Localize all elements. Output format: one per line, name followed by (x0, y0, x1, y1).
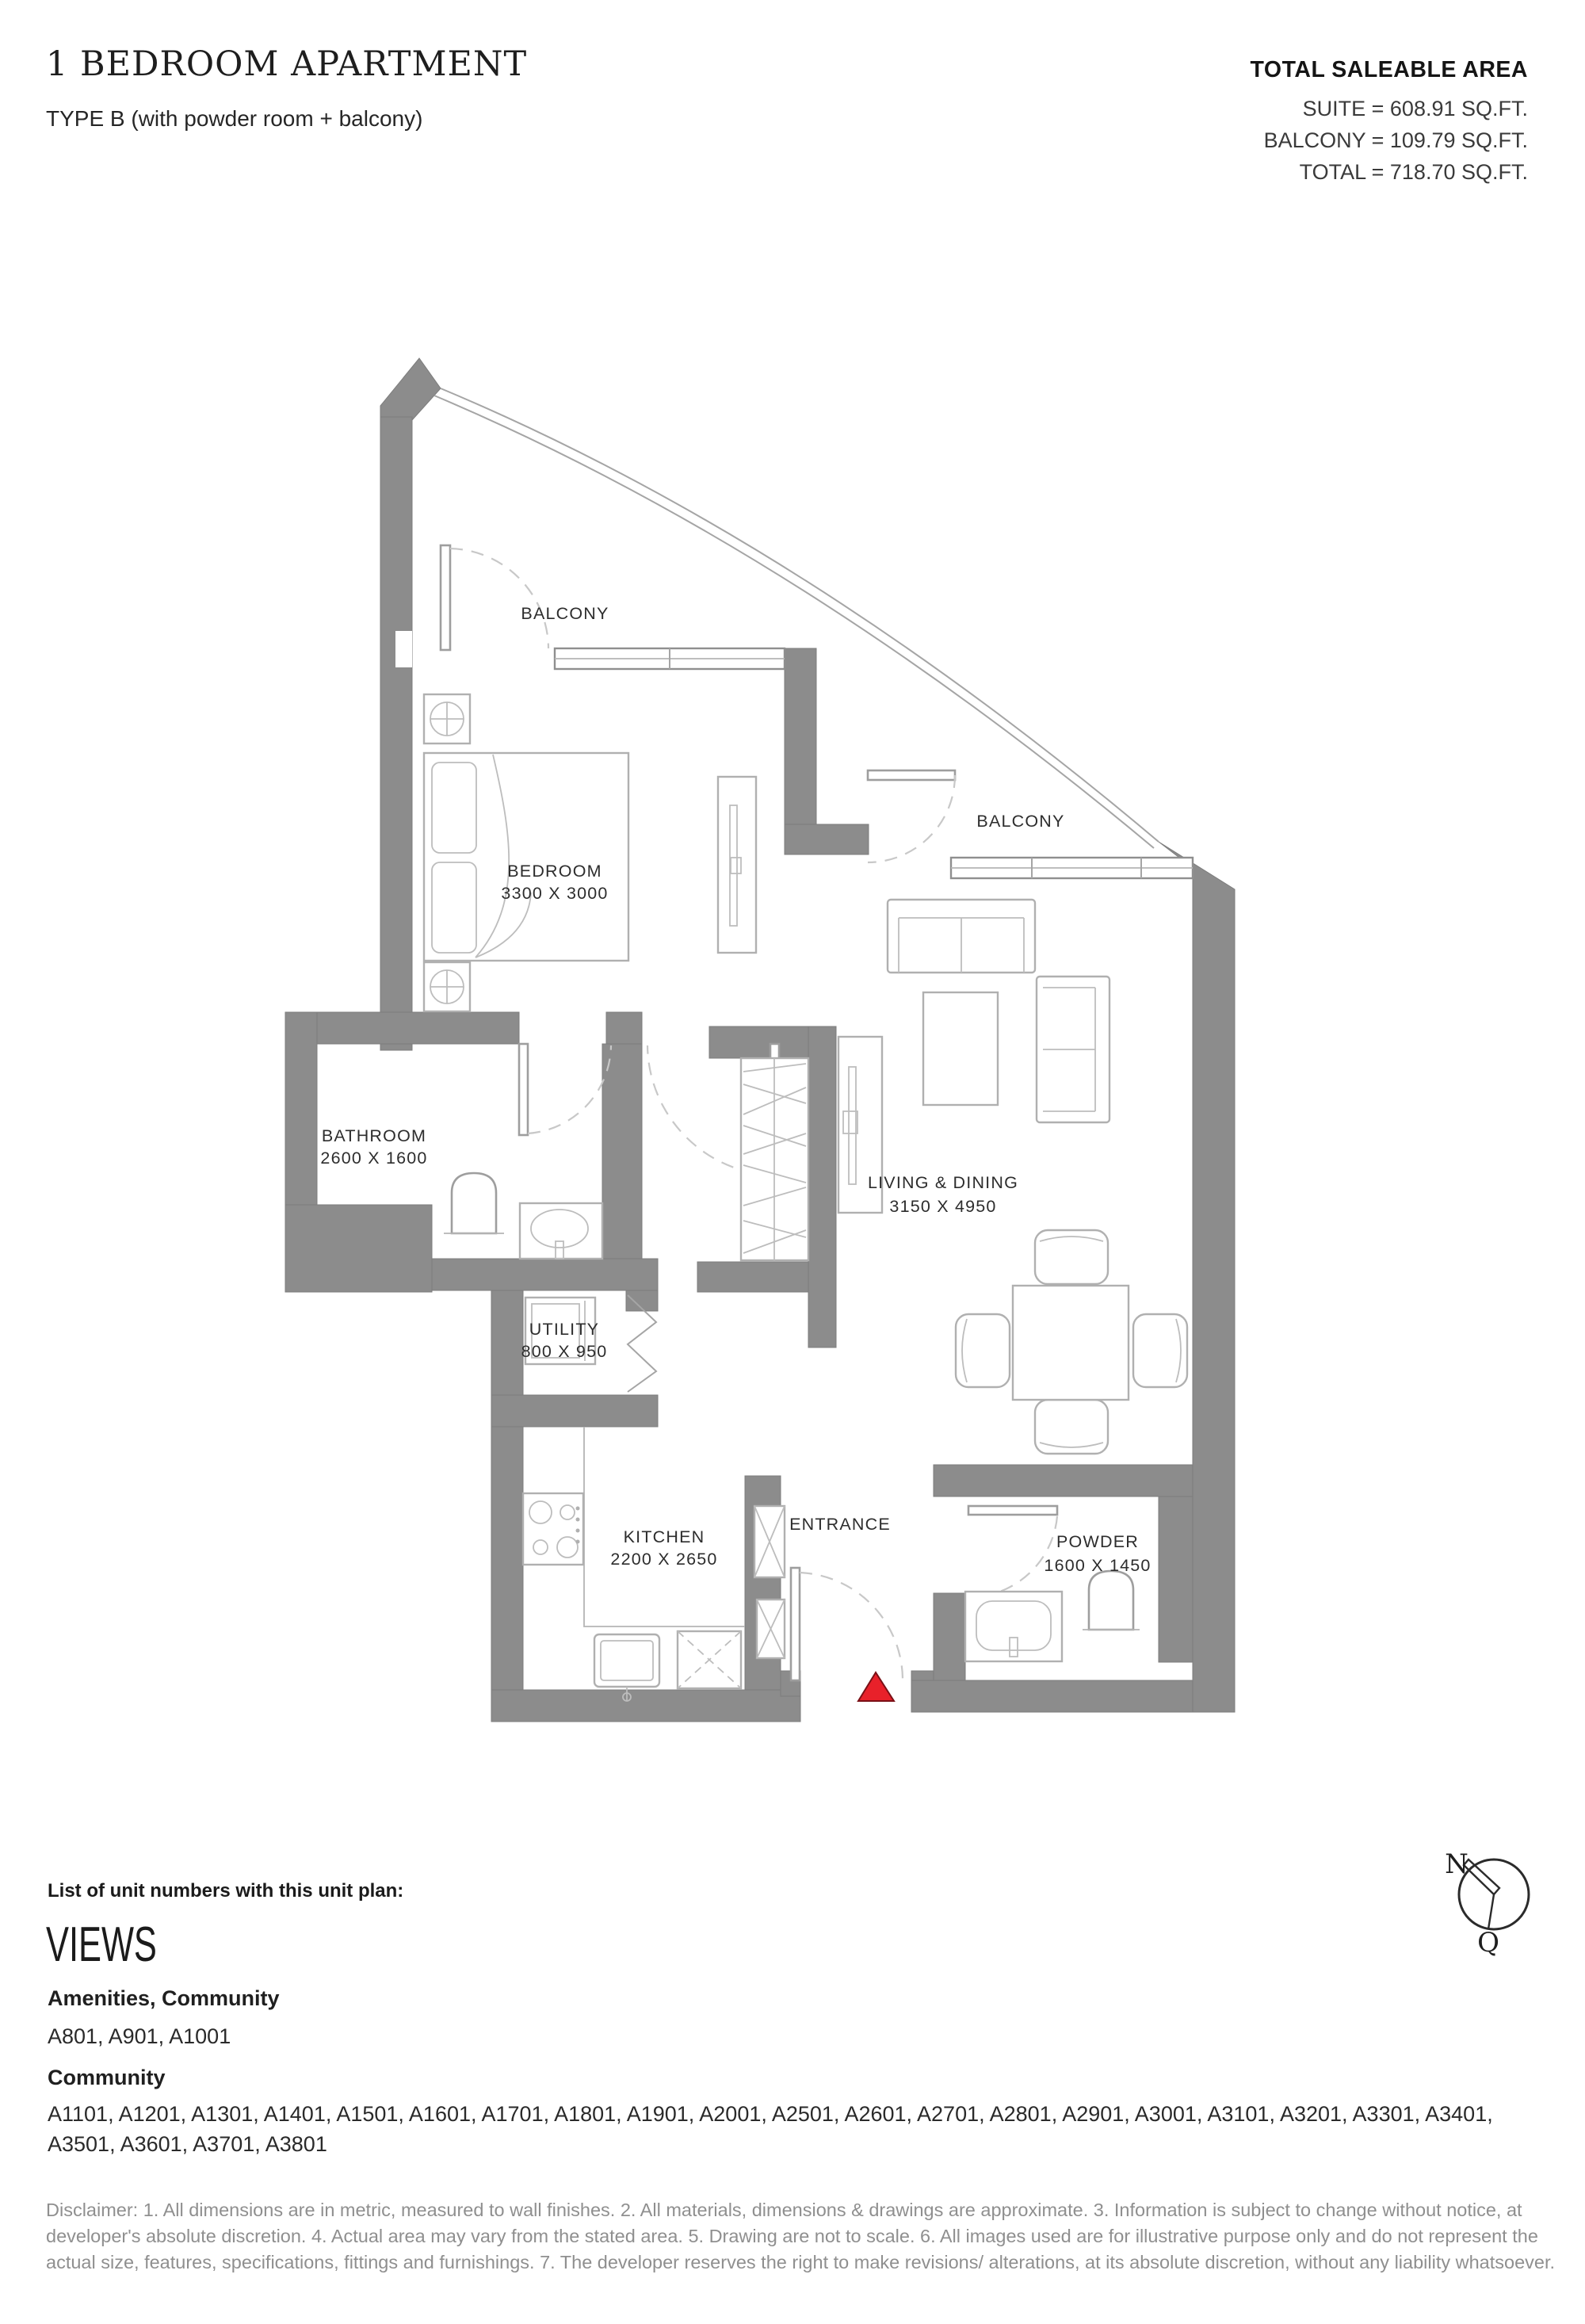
hall-wardrobe (741, 1058, 808, 1260)
stove (523, 1493, 583, 1565)
utility-label: UTILITY (529, 1320, 599, 1339)
bathroom-fixtures (444, 1173, 602, 1259)
compass-north-label: N (1445, 1848, 1469, 1880)
coffee-table (923, 992, 998, 1105)
dining-chair (1133, 1314, 1187, 1387)
powder-dimensions: 1600 X 1450 (1044, 1556, 1151, 1575)
living-balcony-door-leaf (868, 770, 955, 780)
bedroom-furniture (424, 694, 756, 1011)
toilet (452, 1173, 496, 1233)
entrance-label: ENTRANCE (789, 1515, 891, 1534)
powder-fixtures (965, 1571, 1140, 1661)
balcony-door-leaf (441, 545, 450, 650)
bedroom-label: BEDROOM (507, 862, 602, 881)
living-furniture (838, 900, 1109, 1213)
community-units: A1101, A1201, A1301, A1401, A1501, A1601… (48, 2099, 1545, 2159)
disclaimer-text: Disclaimer: 1. All dimensions are in met… (46, 2197, 1561, 2276)
amenities-community-units: A801, A901, A1001 (48, 2021, 1545, 2051)
kitchen-sink (594, 1634, 659, 1687)
floorplan-page: { "header": { "title": "1 BEDROOM APARTM… (0, 0, 1585, 2324)
powder-label: POWDER (1056, 1532, 1139, 1551)
toilet (1089, 1571, 1133, 1630)
entrance-marker-icon (858, 1672, 894, 1701)
community-label: Community (48, 2066, 166, 2090)
compass-south-label: Q (1477, 1927, 1499, 1959)
bedroom-dimensions: 3300 X 3000 (501, 884, 608, 903)
dining-chair (956, 1314, 1010, 1387)
dining-set (956, 1230, 1187, 1454)
bathroom-dimensions: 2600 X 1600 (320, 1149, 427, 1168)
unit-list-heading: List of unit numbers with this unit plan… (48, 1880, 403, 1902)
living-dining-label: LIVING & DINING (868, 1173, 1018, 1192)
compass-icon: N Q (1445, 1848, 1529, 1959)
balcony-top-label: BALCONY (521, 604, 609, 623)
kitchen-dimensions: 2200 X 2650 (610, 1550, 717, 1569)
bed (424, 753, 628, 961)
utility-dimensions: 800 X 950 (521, 1342, 608, 1361)
views-title: VIEWS (46, 1917, 157, 1973)
balcony-right-label: BALCONY (976, 812, 1064, 831)
room-labels: BALCONY BALCONY BEDROOM 3300 X 3000 BATH… (320, 604, 1151, 1575)
dining-chair (1035, 1400, 1108, 1454)
dining-chair (1035, 1230, 1108, 1284)
bathroom-sink-counter (520, 1203, 602, 1259)
amenities-community-label: Amenities, Community (48, 1986, 280, 2011)
bathroom-door-leaf (519, 1044, 528, 1135)
entrance-door-leaf (791, 1568, 800, 1680)
bathroom-label: BATHROOM (322, 1126, 426, 1145)
living-dining-dimensions: 3150 X 4950 (889, 1197, 996, 1216)
powder-door-leaf (968, 1506, 1057, 1515)
kitchen-label: KITCHEN (624, 1527, 705, 1546)
dining-table (1013, 1286, 1129, 1400)
bedroom-side-window (395, 631, 412, 667)
floor-plan: BALCONY BALCONY BEDROOM 3300 X 3000 BATH… (0, 0, 1585, 2324)
